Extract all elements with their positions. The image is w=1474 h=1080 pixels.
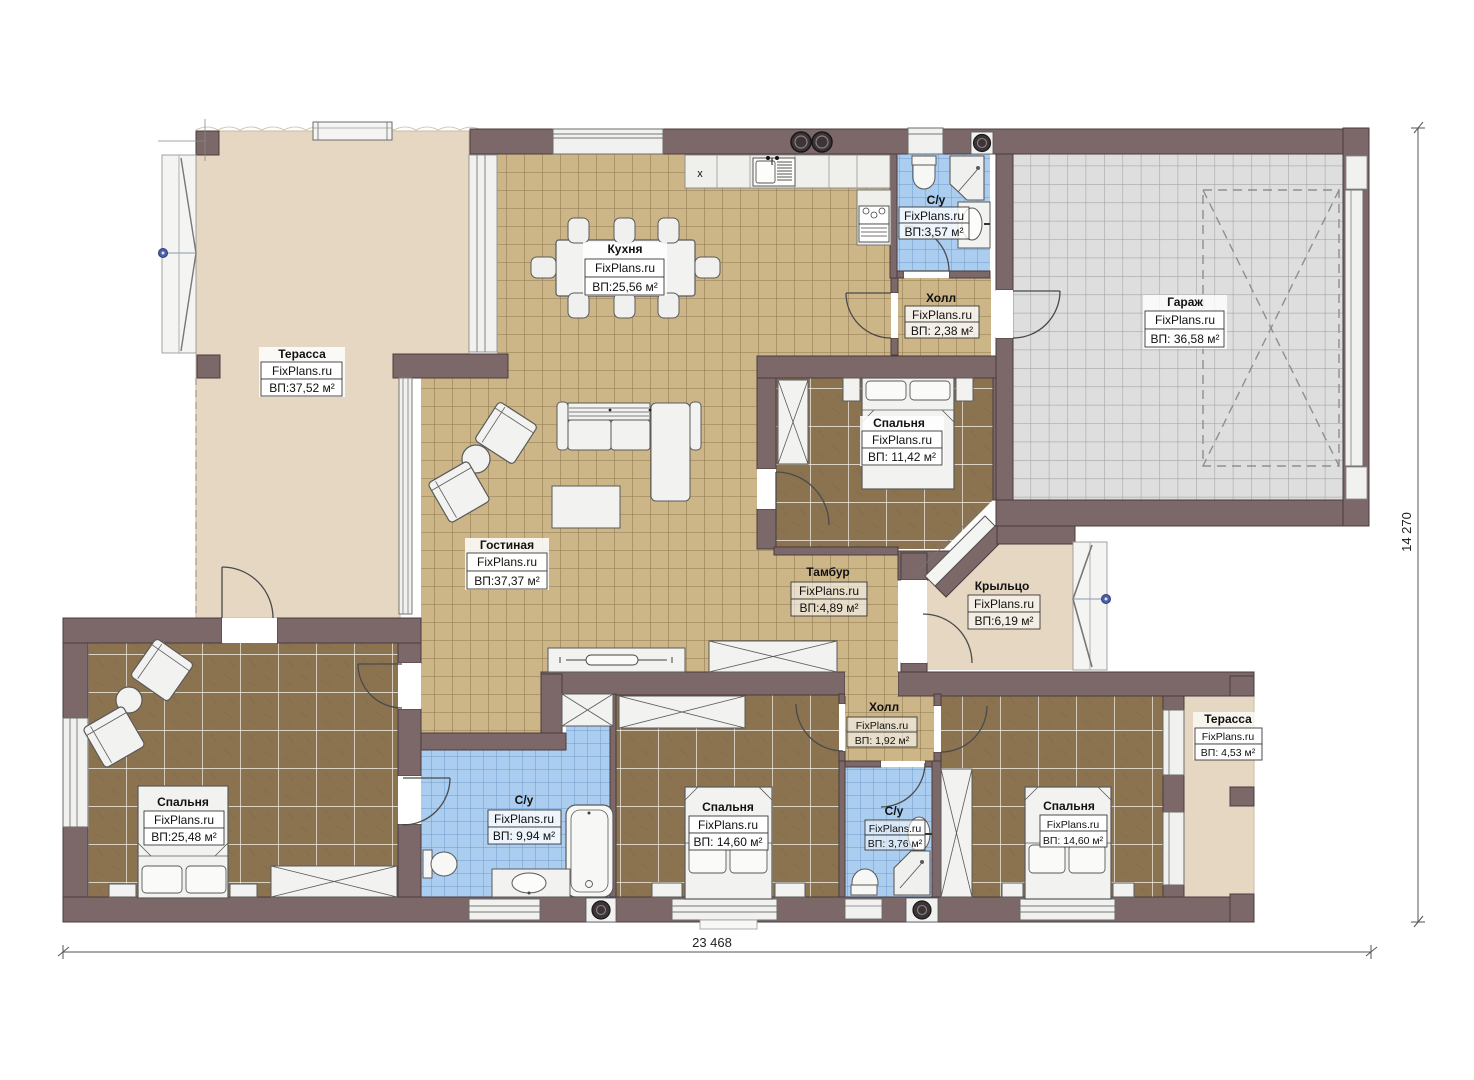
svg-text:ВП:6,19 м²: ВП:6,19 м² <box>975 614 1034 628</box>
svg-text:ВП:37,37 м²: ВП:37,37 м² <box>474 574 540 588</box>
svg-text:Крыльцо: Крыльцо <box>975 579 1030 593</box>
svg-text:FixPlans.ru: FixPlans.ru <box>154 813 214 827</box>
svg-text:FixPlans.ru: FixPlans.ru <box>872 433 932 447</box>
svg-text:Холл: Холл <box>926 291 956 305</box>
svg-text:Спальня: Спальня <box>1043 799 1095 813</box>
svg-text:ВП:37,52 м²: ВП:37,52 м² <box>269 381 335 395</box>
svg-text:ВП: 14,60 м²: ВП: 14,60 м² <box>694 835 763 849</box>
svg-text:FixPlans.ru: FixPlans.ru <box>1155 313 1215 327</box>
svg-text:ВП: 11,42 м²: ВП: 11,42 м² <box>868 450 936 464</box>
svg-text:FixPlans.ru: FixPlans.ru <box>595 261 655 275</box>
svg-text:Тамбур: Тамбур <box>806 565 850 579</box>
svg-text:Кухня: Кухня <box>607 242 642 256</box>
svg-text:FixPlans.ru: FixPlans.ru <box>904 209 964 223</box>
svg-text:ВП:25,48 м²: ВП:25,48 м² <box>151 830 217 844</box>
svg-text:ВП: 36,58 м²: ВП: 36,58 м² <box>1151 332 1220 346</box>
svg-text:FixPlans.ru: FixPlans.ru <box>477 555 537 569</box>
svg-text:ВП: 9,94 м²: ВП: 9,94 м² <box>493 829 555 843</box>
svg-text:Гараж: Гараж <box>1167 295 1203 309</box>
svg-text:14 270: 14 270 <box>1399 512 1414 552</box>
svg-text:ВП: 14,60 м²: ВП: 14,60 м² <box>1043 835 1104 847</box>
svg-text:ВП:4,89 м²: ВП:4,89 м² <box>800 601 859 615</box>
svg-text:x: x <box>697 168 703 180</box>
svg-text:Спальня: Спальня <box>702 800 754 814</box>
svg-text:С/у: С/у <box>515 793 534 807</box>
svg-text:23 468: 23 468 <box>692 935 732 950</box>
svg-text:FixPlans.ru: FixPlans.ru <box>799 584 859 598</box>
svg-text:FixPlans.ru: FixPlans.ru <box>272 364 332 378</box>
svg-text:ВП:25,56 м²: ВП:25,56 м² <box>592 280 658 294</box>
svg-text:ВП: 2,38 м²: ВП: 2,38 м² <box>911 324 973 338</box>
svg-text:ВП: 1,92 м²: ВП: 1,92 м² <box>855 735 910 747</box>
svg-text:FixPlans.ru: FixPlans.ru <box>1047 819 1100 831</box>
svg-text:Терасса: Терасса <box>1204 712 1252 726</box>
svg-text:ВП:3,57 м²: ВП:3,57 м² <box>905 225 964 239</box>
svg-text:С/у: С/у <box>927 193 946 207</box>
svg-text:FixPlans.ru: FixPlans.ru <box>912 308 972 322</box>
svg-text:FixPlans.ru: FixPlans.ru <box>698 818 758 832</box>
svg-text:Спальня: Спальня <box>873 416 925 430</box>
svg-text:FixPlans.ru: FixPlans.ru <box>494 812 554 826</box>
svg-text:FixPlans.ru: FixPlans.ru <box>869 823 922 835</box>
svg-text:FixPlans.ru: FixPlans.ru <box>974 597 1034 611</box>
svg-text:Спальня: Спальня <box>157 795 209 809</box>
svg-text:Гостиная: Гостиная <box>480 538 534 552</box>
svg-text:FixPlans.ru: FixPlans.ru <box>856 720 909 732</box>
svg-text:Холл: Холл <box>869 700 899 714</box>
svg-text:Терасса: Терасса <box>278 347 326 361</box>
svg-text:FixPlans.ru: FixPlans.ru <box>1202 731 1255 743</box>
svg-text:ВП: 4,53 м²: ВП: 4,53 м² <box>1201 747 1256 759</box>
svg-text:С/у: С/у <box>885 804 904 818</box>
svg-text:ВП: 3,76 м²: ВП: 3,76 м² <box>868 838 923 850</box>
